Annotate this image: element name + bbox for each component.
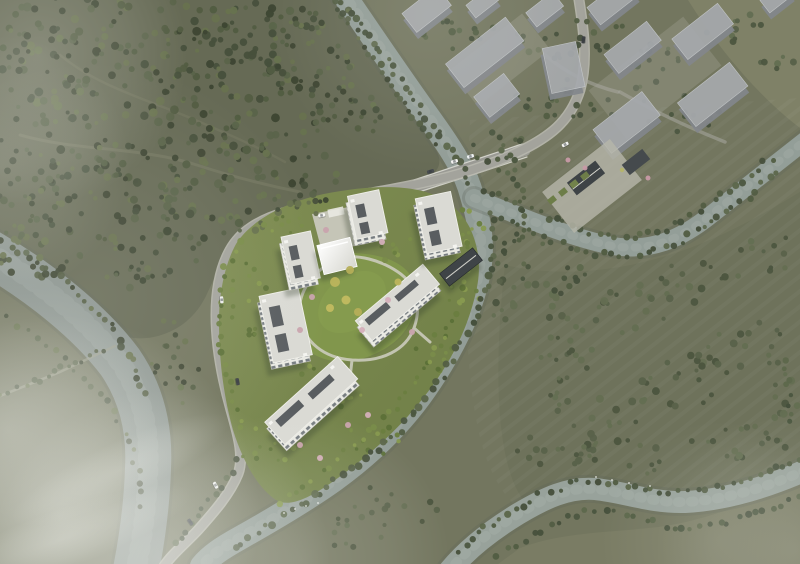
aerial-masterplan-rendering — [0, 0, 800, 564]
accent-tree — [385, 297, 391, 303]
accent-tree — [646, 176, 651, 181]
accent-tree — [365, 412, 371, 418]
rendering-stage — [0, 0, 800, 564]
accent-tree — [379, 239, 385, 245]
accent-tree — [583, 166, 588, 171]
accent-tree — [620, 168, 624, 172]
accent-tree — [330, 277, 340, 287]
accent-tree — [342, 296, 351, 305]
accent-tree — [566, 158, 571, 163]
waterbird — [595, 476, 597, 478]
accent-tree — [346, 266, 354, 274]
accent-tree — [359, 327, 365, 333]
waterbird — [611, 479, 613, 481]
accent-tree — [323, 227, 329, 233]
accent-tree — [395, 279, 402, 286]
accent-tree — [409, 329, 415, 335]
accent-tree — [354, 308, 362, 316]
